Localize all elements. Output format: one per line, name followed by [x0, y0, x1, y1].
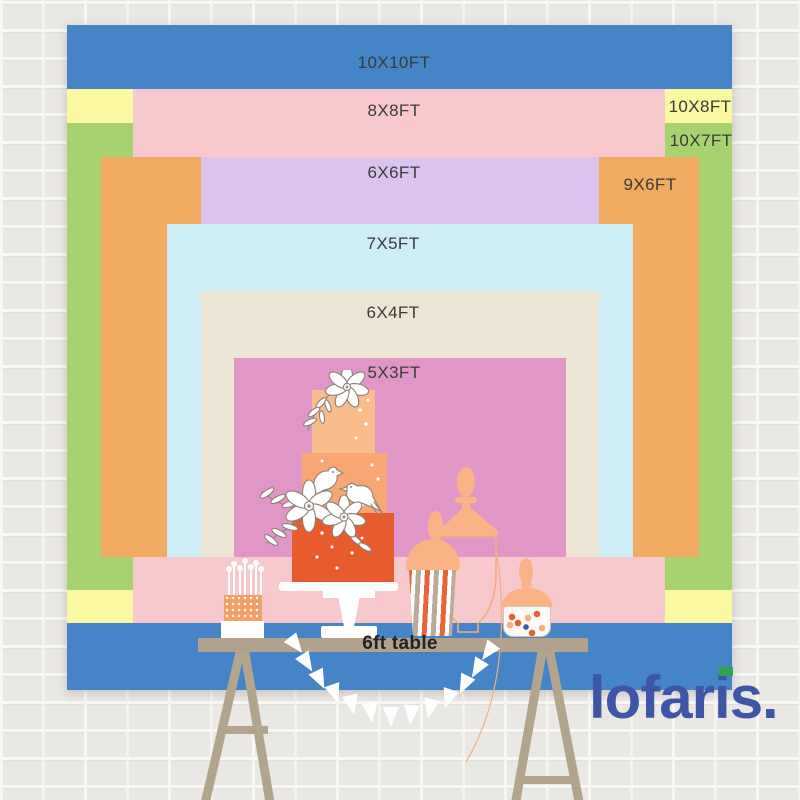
cake-pop-stick [244, 563, 246, 596]
size-label-10x10ft: 10X10FT [358, 54, 431, 71]
brand-wordmark: lofaris. [589, 664, 778, 731]
brick-wall-background: 10X10FT 10X8FT 10X7FT 8X8FT 9X6FT 6X6FT … [0, 0, 800, 800]
cake-pop-stick [228, 571, 230, 596]
pennant-flag-icon [362, 702, 380, 724]
candy-jar-cup [503, 606, 551, 637]
size-label-6x4ft: 6X4FT [366, 304, 419, 321]
popcorn-jar-knob [428, 511, 443, 541]
size-label-10x8ft: 10X8FT [669, 98, 732, 115]
cake-pop-stick [239, 570, 241, 596]
cake-flowers-and-birds-icon [250, 370, 420, 570]
pennant-flag-icon [383, 707, 399, 727]
size-label-8x8ft: 8X8FT [367, 102, 420, 119]
size-label-9x6ft: 9X6FT [623, 176, 676, 193]
cake-pop-stick [260, 571, 262, 596]
cake-pops-base [221, 621, 264, 638]
cake-pops-block [224, 595, 262, 622]
popcorn-jar-body [407, 570, 458, 636]
cake-pop-stick [233, 566, 235, 596]
cake-pop-stick [250, 569, 252, 596]
pennant-flag-icon [342, 693, 362, 716]
size-label-10x7ft: 10X7FT [670, 132, 733, 149]
size-label-6x6ft: 6X6FT [367, 164, 420, 181]
table-size-label: 6ft table [362, 633, 438, 655]
size-label-7x5ft: 7X5FT [366, 235, 419, 252]
trestle-crossbar [517, 776, 574, 784]
trestle-crossbar [221, 726, 268, 734]
brand-logo: lofaris. [589, 668, 778, 728]
pennant-flag-icon [402, 704, 420, 725]
brand-green-flag-icon [719, 667, 733, 676]
